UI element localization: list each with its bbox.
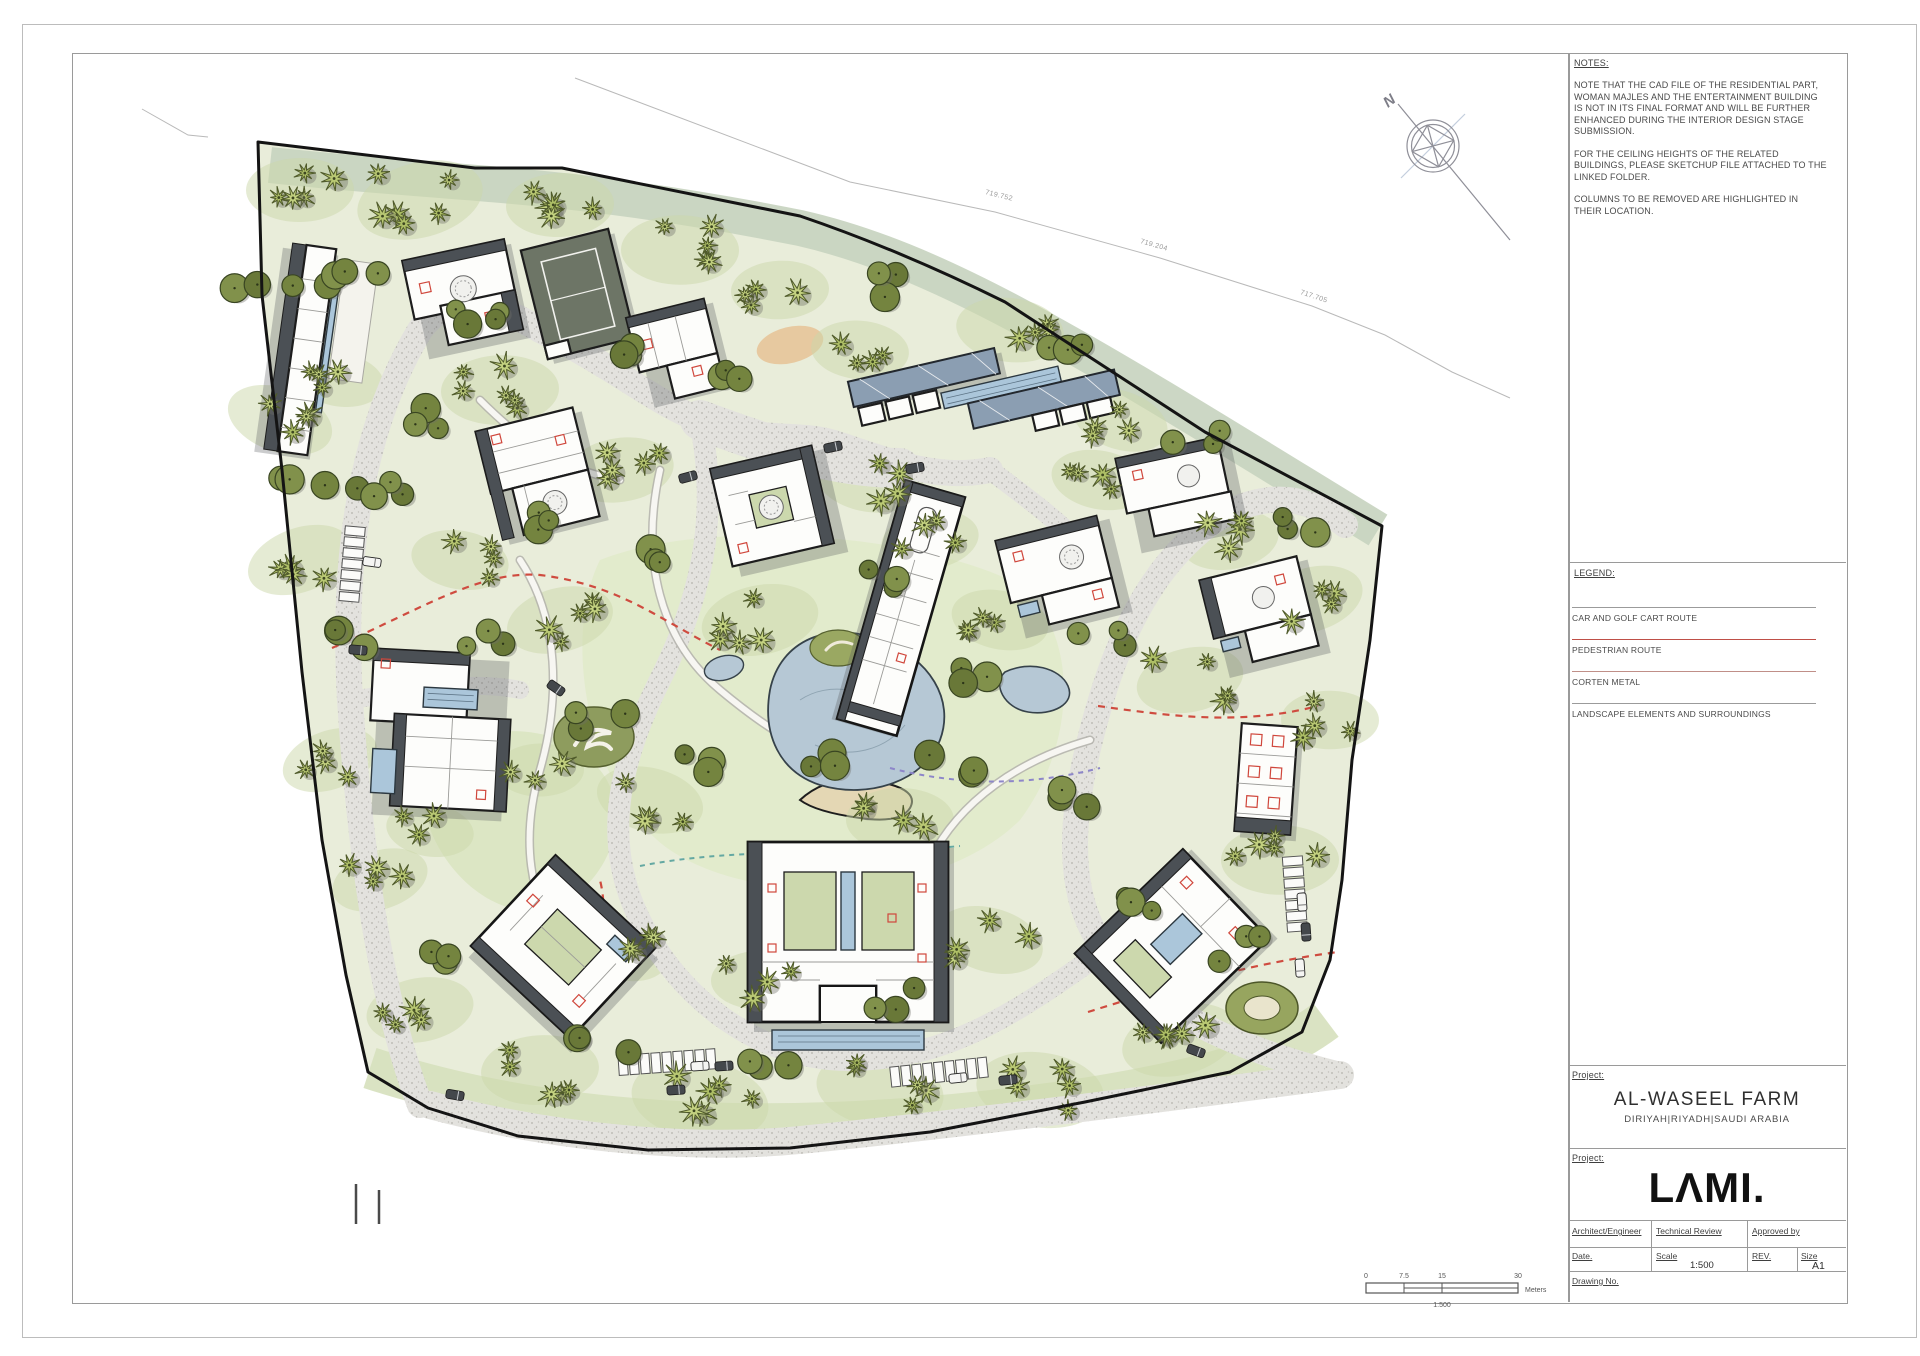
car bbox=[1295, 959, 1305, 978]
legend-swatch-line bbox=[1572, 671, 1816, 672]
note-paragraph: FOR THE CEILING HEIGHTS OF THE RELATED B… bbox=[1574, 149, 1828, 184]
scale-tick: 30 bbox=[1514, 1273, 1522, 1280]
scale-bar: 0 7.5 15 30 Meters 1:500 bbox=[1364, 1273, 1547, 1309]
panel-line bbox=[1651, 1220, 1652, 1271]
panel-line bbox=[1568, 1220, 1846, 1221]
legend-swatch-line bbox=[1572, 607, 1816, 608]
scale-unit: Meters bbox=[1525, 1287, 1547, 1294]
technical-review-label: Technical Review bbox=[1656, 1226, 1722, 1236]
note-paragraph: COLUMNS TO BE REMOVED ARE HIGHLIGHTED IN… bbox=[1574, 194, 1828, 217]
car bbox=[999, 1075, 1018, 1086]
scale-tick: 0 bbox=[1364, 1273, 1368, 1280]
notes-heading: NOTES: bbox=[1574, 58, 1609, 68]
panel-line bbox=[1568, 1271, 1846, 1272]
scale-tick: 15 bbox=[1438, 1273, 1446, 1280]
north-label: N bbox=[1380, 90, 1400, 111]
architect-label: Architect/Engineer bbox=[1572, 1226, 1641, 1236]
reference-ticks bbox=[356, 1184, 379, 1224]
rev-label: REV. bbox=[1752, 1251, 1771, 1261]
scale-label: Scale bbox=[1656, 1251, 1677, 1261]
scale-value: 1:500 bbox=[1690, 1260, 1714, 1271]
legend-swatch-line bbox=[1572, 703, 1816, 704]
legend-item-label: CORTEN METAL bbox=[1572, 677, 1640, 687]
panel-line bbox=[1568, 562, 1846, 563]
survey-label: 719.204 bbox=[1139, 238, 1168, 252]
project-name: AL-WASEEL FARM bbox=[1568, 1089, 1846, 1111]
scale-tick: 7.5 bbox=[1399, 1273, 1409, 1280]
approved-by-label: Approved by bbox=[1752, 1226, 1800, 1236]
notes-block: NOTE THAT THE CAD FILE OF THE RESIDENTIA… bbox=[1574, 80, 1828, 228]
survey-label: 719.752 bbox=[985, 189, 1014, 203]
drawing-sheet: 719.752 719.204 717.705 N bbox=[0, 0, 1920, 1356]
date-label: Date. bbox=[1572, 1251, 1592, 1261]
size-value: A1 bbox=[1812, 1260, 1825, 1272]
building bbox=[365, 648, 513, 821]
building bbox=[748, 842, 954, 1050]
legend-item-label: CAR AND GOLF CART ROUTE bbox=[1572, 613, 1697, 623]
drawing-no-label: Drawing No. bbox=[1572, 1276, 1619, 1286]
project-label: Project: bbox=[1572, 1070, 1604, 1080]
firm-label: Project: bbox=[1572, 1153, 1604, 1163]
panel-line bbox=[1568, 1247, 1846, 1248]
legend-heading: LEGEND: bbox=[1574, 568, 1615, 578]
car bbox=[667, 1085, 686, 1095]
project-location: DIRIYAH|RIYADH|SAUDI ARABIA bbox=[1568, 1114, 1846, 1125]
legend-swatch-line bbox=[1572, 639, 1816, 640]
company-logo: LΛMI. bbox=[1568, 1164, 1846, 1212]
car bbox=[349, 645, 368, 656]
car bbox=[949, 1073, 968, 1084]
car bbox=[362, 556, 381, 567]
car bbox=[715, 1061, 734, 1071]
legend-item-label: PEDESTRIAN ROUTE bbox=[1572, 645, 1662, 655]
car bbox=[1297, 893, 1307, 912]
scale-ratio: 1:500 bbox=[1433, 1302, 1451, 1309]
north-arrow: N bbox=[1380, 90, 1510, 240]
panel-line bbox=[1568, 1148, 1846, 1149]
panel-line bbox=[1747, 1220, 1748, 1271]
note-paragraph: NOTE THAT THE CAD FILE OF THE RESIDENTIA… bbox=[1574, 80, 1828, 138]
car bbox=[691, 1061, 710, 1071]
car bbox=[1301, 923, 1311, 942]
legend-item-label: LANDSCAPE ELEMENTS AND SURROUNDINGS bbox=[1572, 709, 1771, 719]
panel-line bbox=[1797, 1247, 1798, 1271]
survey-label: 717.705 bbox=[1299, 289, 1328, 304]
panel-line bbox=[1568, 1065, 1846, 1066]
